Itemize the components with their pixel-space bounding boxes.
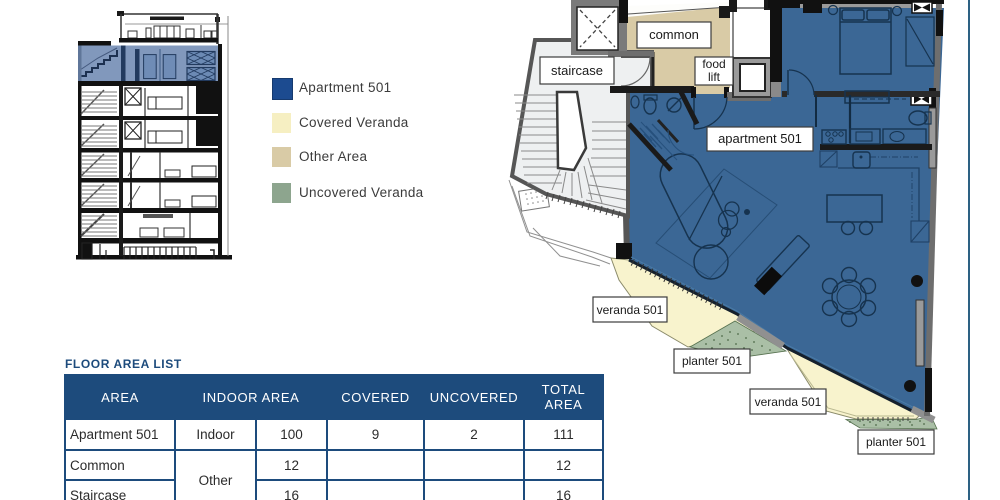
svg-text:common: common [649, 27, 699, 42]
svg-text:food: food [702, 57, 725, 71]
svg-text:planter 501: planter 501 [682, 354, 742, 368]
svg-text:veranda 501: veranda 501 [597, 303, 664, 317]
svg-text:planter 501: planter 501 [866, 435, 926, 449]
svg-text:veranda 501: veranda 501 [755, 395, 822, 409]
svg-text:apartment 501: apartment 501 [718, 131, 802, 146]
svg-text:lift: lift [708, 70, 721, 84]
svg-text:staircase: staircase [551, 63, 603, 78]
